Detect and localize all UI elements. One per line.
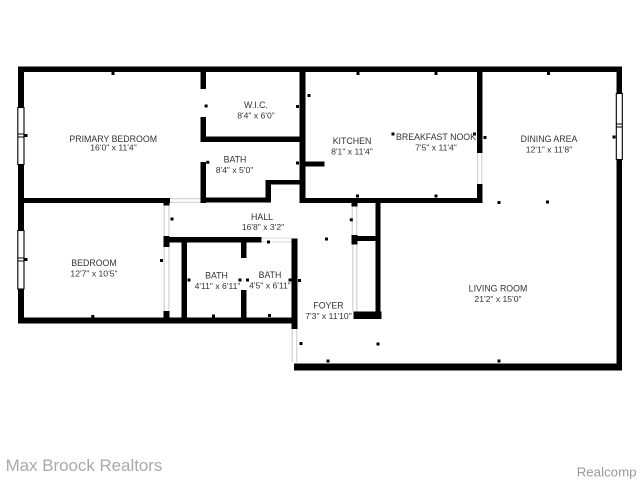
svg-text:8'4" x 6'0": 8'4" x 6'0" — [237, 111, 275, 121]
svg-text:8'4" x 5'0": 8'4" x 5'0" — [216, 165, 254, 175]
svg-text:BATH: BATH — [224, 155, 247, 165]
svg-text:4'11" x 6'11": 4'11" x 6'11" — [195, 281, 241, 291]
svg-text:Realcomp: Realcomp — [577, 464, 637, 479]
svg-text:BREAKFAST NOOK: BREAKFAST NOOK — [396, 132, 476, 142]
svg-text:16'8" x 3'2": 16'8" x 3'2" — [242, 222, 284, 232]
svg-text:8'1" x 11'4": 8'1" x 11'4" — [331, 147, 373, 157]
svg-text:FOYER: FOYER — [313, 301, 343, 311]
svg-text:4'5" x 6'11": 4'5" x 6'11" — [249, 281, 291, 291]
svg-text:BATH: BATH — [205, 271, 228, 281]
svg-text:16'0" x 11'4": 16'0" x 11'4" — [90, 143, 137, 153]
svg-text:7'5" x 11'4": 7'5" x 11'4" — [415, 143, 457, 153]
svg-text:7'3" x 11'10": 7'3" x 11'10" — [305, 311, 352, 321]
svg-text:DINING AREA: DINING AREA — [521, 134, 578, 144]
svg-text:21'2" x 15'0": 21'2" x 15'0" — [474, 294, 521, 304]
svg-text:BEDROOM: BEDROOM — [71, 258, 116, 268]
svg-text:W.I.C.: W.I.C. — [244, 100, 268, 110]
svg-text:LIVING ROOM: LIVING ROOM — [469, 284, 528, 294]
svg-text:12'7" x 10'5": 12'7" x 10'5" — [70, 269, 117, 279]
svg-text:BATH: BATH — [259, 270, 282, 280]
svg-text:Max Broock Realtors: Max Broock Realtors — [6, 456, 163, 475]
svg-text:12'1" x 11'8": 12'1" x 11'8" — [526, 145, 573, 155]
svg-text:KITCHEN: KITCHEN — [333, 136, 372, 146]
svg-text:HALL: HALL — [251, 212, 273, 222]
